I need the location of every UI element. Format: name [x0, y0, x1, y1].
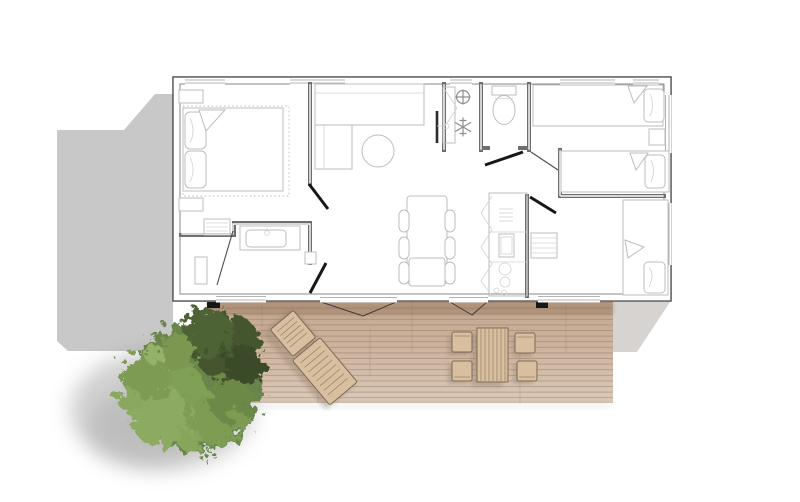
building-shadow-on-deck	[207, 302, 613, 315]
door-threshold-block-right	[536, 302, 548, 308]
nightstand	[179, 198, 203, 211]
door-threshold-block-left	[207, 302, 220, 308]
boiler-cross-icon	[456, 90, 470, 104]
window	[538, 295, 600, 303]
dining-chair	[445, 262, 455, 284]
dining-chair	[399, 210, 409, 232]
deck-planks	[207, 302, 613, 403]
outdoor-chair	[517, 361, 537, 381]
window	[185, 79, 225, 85]
pillow	[644, 262, 665, 293]
sliding-door-opening	[320, 295, 397, 303]
sliding-door-opening	[449, 295, 488, 303]
ground-shadow-left	[57, 94, 173, 351]
deck	[207, 302, 613, 410]
window	[450, 79, 472, 85]
nightstand	[649, 129, 665, 145]
hall-cabinet	[305, 252, 316, 264]
outdoor-chair	[452, 332, 472, 352]
dining-chair	[445, 210, 455, 232]
dining-table-set	[399, 196, 455, 286]
nightstand	[179, 90, 203, 103]
dining-bench	[409, 258, 445, 286]
pillow	[185, 151, 206, 188]
window	[633, 79, 659, 85]
outdoor-table	[477, 328, 508, 382]
outdoor-chair	[515, 333, 535, 353]
window	[560, 79, 615, 85]
building-plan	[173, 77, 672, 303]
dining-chair	[399, 262, 409, 284]
dining-chair	[399, 237, 409, 259]
ground-shadow-right	[613, 302, 670, 352]
floorplan-scene	[0, 0, 800, 502]
window	[216, 295, 266, 303]
pillow	[644, 89, 664, 122]
outdoor-chair	[452, 361, 472, 381]
dining-chair	[445, 237, 455, 259]
deck-edge-shadow	[210, 401, 610, 409]
pillow	[645, 155, 665, 188]
